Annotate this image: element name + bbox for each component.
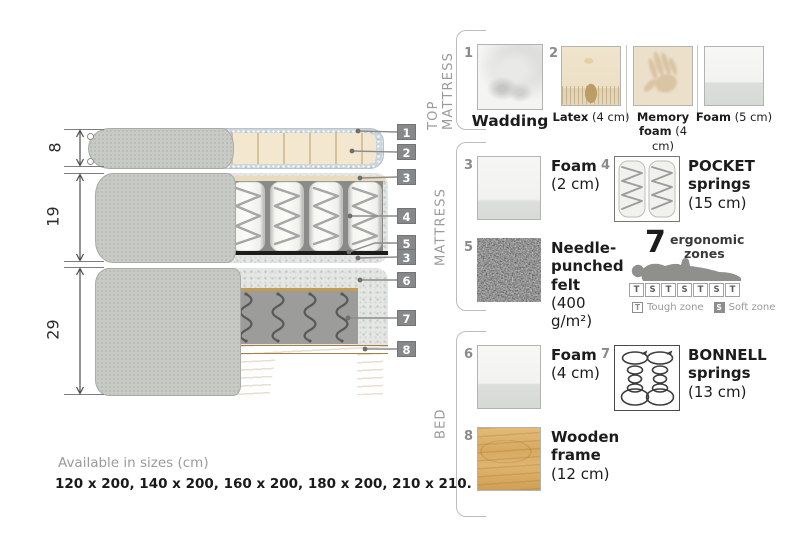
callout-8: 8 [397, 341, 416, 357]
wooden-frame-name: Wooden frame [551, 428, 619, 464]
foam-5cm-name: Foam [696, 110, 731, 124]
item-2-number: 2 [549, 46, 558, 61]
wadding-thumbnail [477, 44, 543, 110]
callout-7: 7 [397, 310, 416, 326]
zone-row: T S T S T S T [629, 283, 741, 297]
zone-cell-5: T [693, 283, 708, 297]
latex-thumbnail [561, 46, 621, 106]
item-1-number: 1 [464, 46, 473, 61]
pocket-springs-label: POCKET springs (15 cm) [688, 157, 776, 212]
zone-cell-7: T [725, 283, 740, 297]
foam-4cm-thumbnail [477, 345, 541, 409]
zone-cell-2: S [645, 283, 660, 297]
zone-cell-4: S [677, 283, 692, 297]
item-7-number: 7 [601, 347, 610, 362]
bed-fabric-cover [95, 268, 241, 396]
latex-name: Latex [553, 110, 589, 124]
dim-bed-height: 29 [44, 317, 63, 343]
ergonomic-zone-count: 7 [645, 228, 666, 258]
topper-fabric-cover [88, 128, 234, 169]
dim-topper-height: 8 [46, 135, 65, 161]
sleeping-person-icon [627, 256, 745, 284]
soft-zone-icon: S [714, 302, 725, 313]
mattress-fabric-cover [95, 173, 236, 263]
pocket-springs-name: POCKET springs [688, 157, 755, 193]
needle-felt-detail: (400 g/m²) [551, 294, 592, 330]
bonnell-springs-name: BONNELL springs [688, 346, 767, 382]
bed-cross-section-diagram: 8 19 29 1 2 3 4 5 3 6 7 8 [0, 0, 430, 533]
foam-4cm-detail: (4 cm) [551, 364, 600, 382]
zone-cell-3: T [661, 283, 676, 297]
foam-2cm-thumbnail [477, 156, 541, 220]
bonnell-springs-detail: (13 cm) [688, 383, 746, 401]
section-label-mattress: MATTRESS [428, 142, 454, 311]
soft-zone-label: Soft zone [729, 302, 776, 313]
mattress-construction-infographic: 8 19 29 1 2 3 4 5 3 6 7 8 TOP MATTRESS 1… [0, 0, 800, 533]
wadding-name: Wadding [472, 112, 549, 130]
bed-right-leg [357, 354, 383, 395]
wooden-frame-thumbnail [477, 427, 541, 491]
callout-1: 1 [397, 124, 416, 140]
pocket-springs-thumbnail [614, 156, 680, 222]
foam-5cm-detail: (5 cm) [735, 110, 772, 124]
sizes-title: Available in sizes (cm) [58, 455, 209, 471]
tough-zone-label: Tough zone [647, 302, 704, 313]
zone-cell-1: T [629, 283, 644, 297]
latex-detail: (4 cm) [592, 110, 629, 124]
thumb-divider-1 [626, 45, 627, 119]
section-label-top-mattress: TOP MATTRESS [428, 30, 454, 130]
callout-3: 3 [397, 169, 416, 185]
ergonomic-zones-block: 7 ergonomic zones T S T S T S T T Tough … [612, 228, 777, 318]
bonnell-springs-thumbnail [614, 345, 680, 411]
wadding-label: Wadding [462, 112, 558, 130]
zone-cell-6: S [709, 283, 724, 297]
tough-zone-icon: T [632, 302, 643, 313]
dim-mattress-height: 19 [44, 204, 63, 230]
foam-4cm-name: Foam [551, 346, 597, 364]
callout-6: 6 [397, 272, 416, 288]
item-4-number: 4 [601, 158, 610, 173]
foam-2cm-name: Foam [551, 157, 597, 175]
pocket-springs-cutaway [230, 181, 383, 252]
item-3-number: 3 [464, 158, 473, 173]
callout-3b: 3 [397, 249, 416, 265]
topper-button-top [87, 133, 94, 140]
bed-wooden-slat [230, 345, 388, 354]
item-5-number: 5 [464, 240, 473, 255]
wooden-frame-detail: (12 cm) [551, 465, 609, 483]
dimension-and-leader-lines [0, 0, 430, 533]
pocket-springs-detail: (15 cm) [688, 194, 746, 212]
latex-label: Latex (4 cm) [552, 110, 630, 124]
mattress-felt-line [228, 251, 388, 255]
bonnell-springs-cutaway [232, 291, 358, 344]
foam-5cm-thumbnail [704, 46, 764, 106]
memory-foam-thumbnail [633, 46, 693, 106]
wooden-frame-label: Wooden frame (12 cm) [551, 428, 671, 483]
bonnell-springs-label: BONNELL springs (13 cm) [688, 346, 776, 401]
foam-5cm-label: Foam (5 cm) [694, 110, 774, 124]
topper-button-bottom [87, 158, 94, 165]
callout-2: 2 [397, 144, 416, 160]
memory-foam-label: Memory foam (4 cm) [627, 110, 699, 153]
foam-2cm-detail: (2 cm) [551, 175, 600, 193]
ergonomic-label-line1: ergonomic [670, 232, 744, 247]
needle-felt-thumbnail [477, 238, 541, 302]
thumb-divider-2 [697, 45, 698, 119]
item-6-number: 6 [464, 347, 473, 362]
item-8-number: 8 [464, 429, 473, 444]
sizes-list: 120 x 200, 140 x 200, 160 x 200, 180 x 2… [55, 476, 472, 492]
zone-legend: T Tough zone S Soft zone [632, 302, 775, 313]
callout-4: 4 [397, 208, 416, 224]
